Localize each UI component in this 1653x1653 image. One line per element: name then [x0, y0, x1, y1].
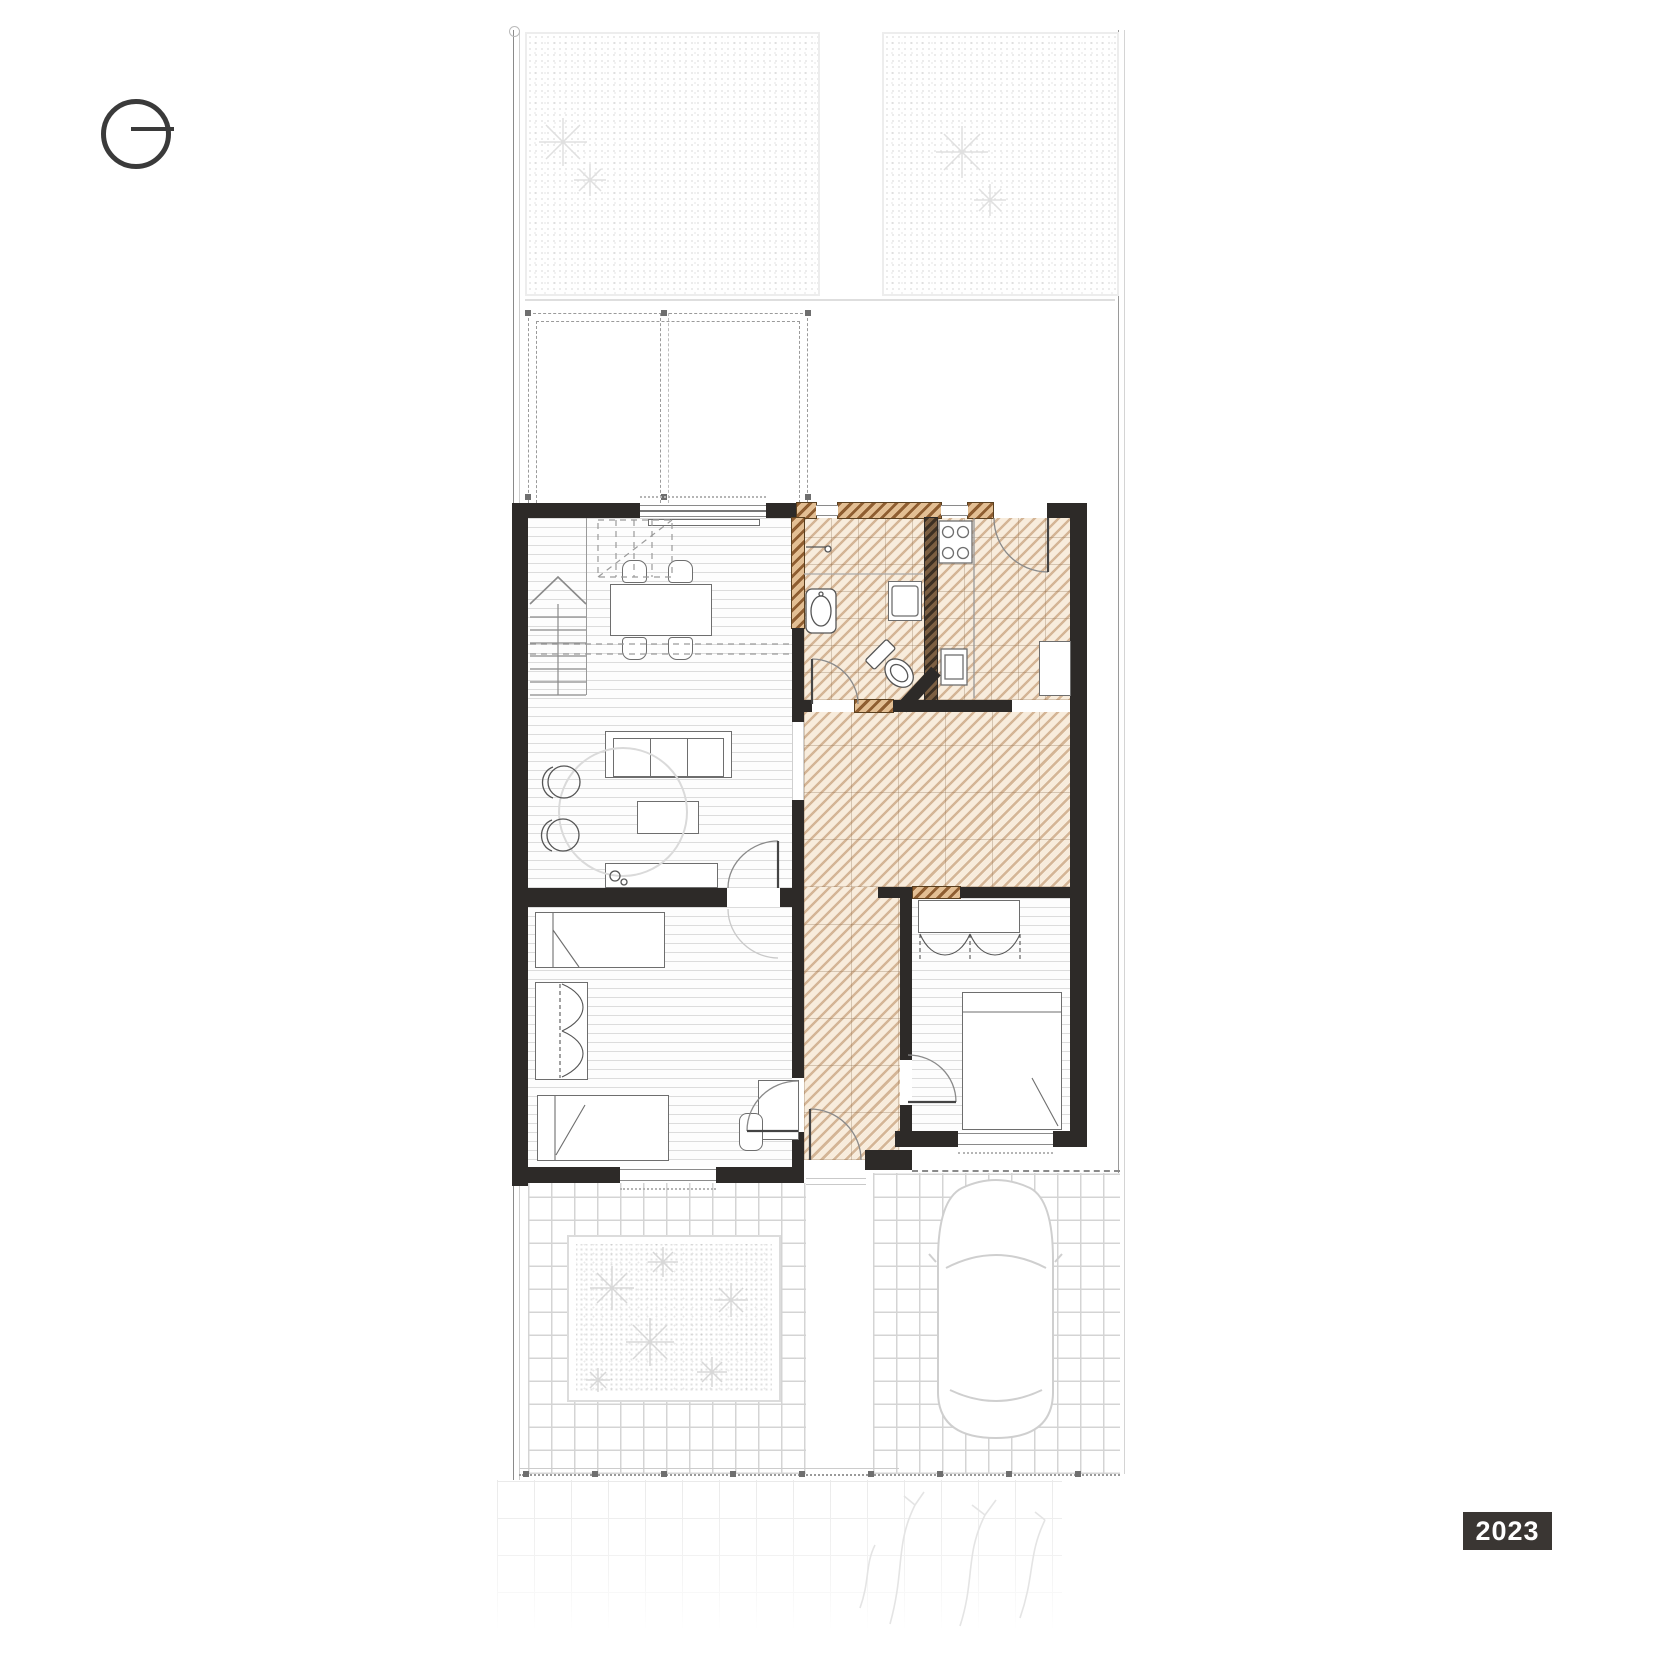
dining-chair — [668, 560, 693, 583]
bed-single-2 — [537, 1095, 669, 1161]
pergola-post — [805, 310, 811, 316]
fence-post — [799, 1471, 805, 1477]
pergola-post — [525, 310, 531, 316]
fence-post — [523, 1471, 529, 1477]
year-badge: 2023 — [1463, 1512, 1552, 1550]
fence-post — [661, 1471, 667, 1477]
wall-hall-left — [792, 800, 804, 907]
pergola-post — [805, 494, 811, 500]
sliding-door-outer-sill — [640, 496, 766, 498]
pergola-divider — [660, 313, 662, 503]
courtyard-planting-bed — [567, 1235, 781, 1402]
neighbor-garden-left — [525, 32, 820, 296]
wall-bedroom2-left — [900, 887, 912, 1060]
fence-post — [1006, 1471, 1012, 1477]
wall-bedroom2-left — [900, 1105, 912, 1132]
street-sidewalk — [497, 1480, 1062, 1630]
wall-bottom-right — [895, 1131, 958, 1147]
fence-post — [868, 1471, 874, 1477]
fence-post — [592, 1471, 598, 1477]
wall-entry-stub — [865, 1150, 912, 1170]
dining-table — [610, 584, 712, 636]
fridge — [1039, 641, 1071, 696]
sofa-cushion-line — [687, 738, 688, 777]
bedroom1-window — [620, 1169, 716, 1181]
wall-top-new — [797, 503, 816, 518]
pergola-post — [525, 494, 531, 500]
wall-bottom-right — [1053, 1131, 1087, 1147]
year-badge-label: 2023 — [1475, 1516, 1539, 1547]
plot-boundary-right-inner — [1124, 30, 1125, 1474]
kitchen-window — [941, 505, 968, 516]
wall-hall-divider — [893, 700, 1012, 712]
pergola-divider-2 — [668, 313, 670, 503]
bedroom2-window — [958, 1133, 1053, 1145]
fence-post — [730, 1471, 736, 1477]
wall-hall-divider-new — [855, 700, 893, 712]
wall-right — [1070, 503, 1087, 1147]
coffee-table — [637, 801, 699, 834]
boundary-marker-circle — [509, 26, 520, 37]
bedroom2-window-sill — [958, 1152, 1053, 1154]
desk-chair — [739, 1113, 763, 1151]
wall-bathroom-left-new — [792, 518, 804, 628]
wall-left — [512, 503, 528, 1186]
bathroom-window — [816, 505, 838, 516]
wall-hall-left — [792, 628, 804, 722]
bed-single-1 — [535, 912, 665, 968]
building-line-dashed — [912, 1170, 1120, 1172]
entry-step — [806, 1178, 866, 1179]
wardrobe-bedroom2 — [918, 900, 1020, 933]
desk-bedroom1 — [758, 1080, 799, 1140]
bed-double — [962, 992, 1062, 1130]
dining-chair — [668, 637, 693, 660]
wall-bedroom2-top-new — [913, 887, 960, 898]
wall-top — [512, 503, 640, 518]
courtyard-paving-right — [873, 1173, 1120, 1474]
stair-edge — [586, 518, 587, 695]
floor-hall — [804, 712, 1070, 887]
entry-step — [806, 1184, 866, 1185]
fence-line — [519, 1474, 1120, 1476]
fence-post — [937, 1471, 943, 1477]
dining-chair — [622, 637, 647, 660]
neighbor-garden-right — [882, 32, 1119, 296]
wall-top-new — [968, 503, 993, 518]
sofa-seat — [613, 738, 724, 777]
wall-living-bottom — [780, 888, 792, 907]
north-indicator-needle — [131, 127, 174, 131]
wall-top-new — [838, 503, 941, 518]
wall-top — [766, 503, 797, 518]
washing-machine — [888, 581, 922, 621]
north-indicator-icon — [101, 99, 171, 169]
wall-hall-divider — [804, 700, 812, 712]
pergola-post — [661, 310, 667, 316]
fence-rail — [519, 1468, 899, 1469]
wall-bottom — [512, 1167, 620, 1183]
wall-living-bottom — [528, 888, 727, 907]
neighbor-terrace-edge — [525, 299, 1115, 301]
sofa-cushion-line — [650, 738, 651, 777]
bedroom1-window-sill — [620, 1188, 716, 1190]
sliding-glass-door-track — [640, 510, 766, 512]
wall-bedroom2-top — [960, 887, 1087, 898]
fence-post — [1075, 1471, 1081, 1477]
threshold-dining-hall — [792, 722, 804, 800]
wardrobe-bedroom1 — [535, 982, 588, 1080]
floor-plan-sheet: 2023 — [0, 0, 1653, 1653]
wall-corridor-left — [792, 907, 804, 1078]
tv-sideboard — [605, 863, 718, 888]
wall-bottom — [716, 1167, 804, 1183]
sliding-door-panel — [648, 519, 760, 526]
floor-corridor-entry — [804, 887, 900, 1160]
dining-chair — [622, 560, 647, 583]
wall-bath-kitchen-divider — [925, 518, 937, 700]
